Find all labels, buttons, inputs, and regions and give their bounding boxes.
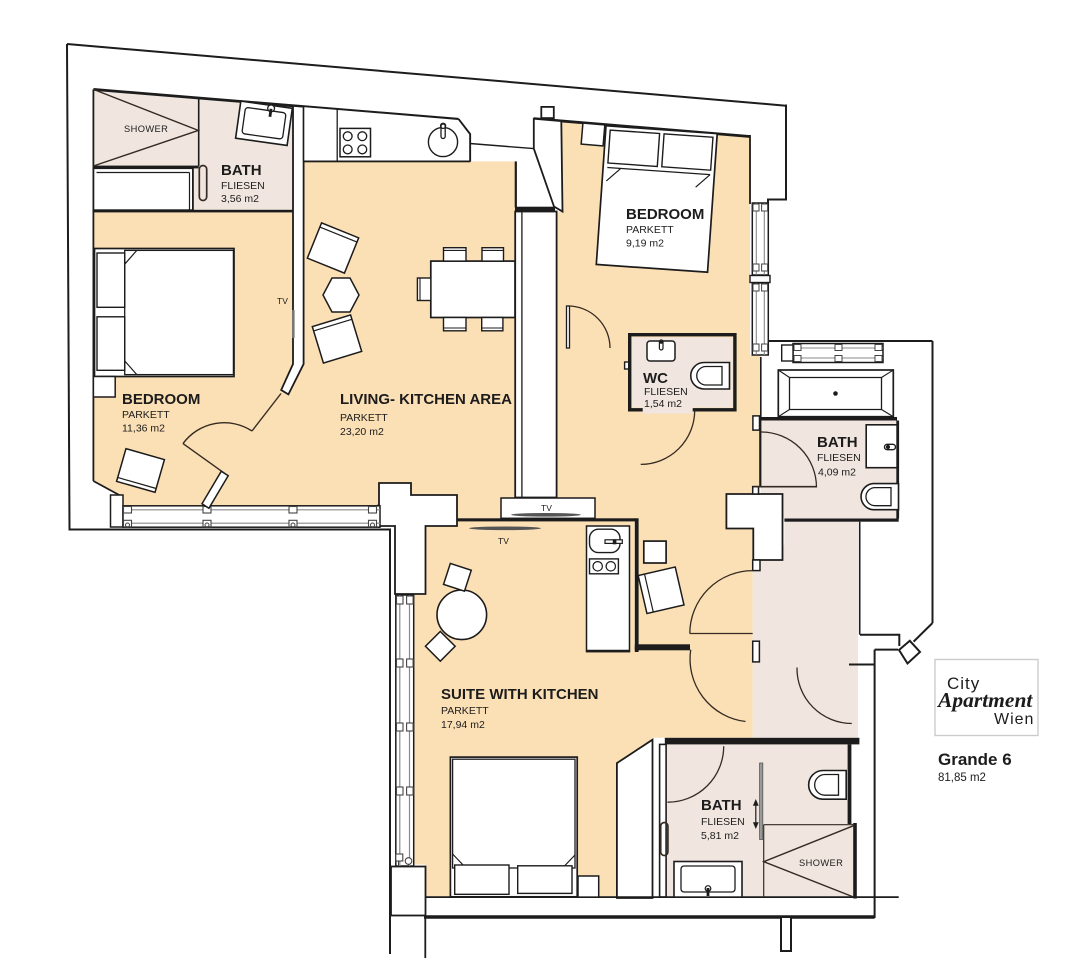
svg-text:PARKETT: PARKETT	[626, 224, 674, 236]
svg-text:17,94 m2: 17,94 m2	[441, 719, 485, 731]
svg-text:FLIESEN: FLIESEN	[644, 386, 688, 398]
svg-text:SHOWER: SHOWER	[799, 858, 843, 868]
svg-text:BATH: BATH	[221, 162, 262, 179]
svg-text:Apartment: Apartment	[936, 688, 1033, 712]
svg-text:TV: TV	[541, 503, 552, 513]
svg-text:PARKETT: PARKETT	[441, 705, 489, 717]
svg-text:LIVING- KITCHEN AREA: LIVING- KITCHEN AREA	[340, 391, 512, 408]
svg-text:FLIESEN: FLIESEN	[817, 452, 861, 464]
svg-text:5,81 m2: 5,81 m2	[701, 830, 739, 842]
svg-text:SUITE WITH KITCHEN: SUITE WITH KITCHEN	[441, 686, 599, 703]
svg-text:23,20 m2: 23,20 m2	[340, 426, 384, 438]
svg-text:TV: TV	[277, 296, 288, 306]
svg-text:4,09 m2: 4,09 m2	[818, 467, 856, 479]
svg-text:BEDROOM: BEDROOM	[122, 391, 200, 408]
svg-text:11,36 m2: 11,36 m2	[122, 423, 165, 435]
svg-text:PARKETT: PARKETT	[340, 412, 388, 424]
svg-text:9,19 m2: 9,19 m2	[626, 238, 664, 250]
svg-text:TV: TV	[498, 536, 509, 546]
svg-text:WC: WC	[643, 370, 668, 387]
svg-text:3,56 m2: 3,56 m2	[221, 193, 259, 205]
svg-text:BEDROOM: BEDROOM	[626, 206, 704, 223]
svg-text:1,54 m2: 1,54 m2	[644, 398, 682, 410]
svg-text:SHOWER: SHOWER	[124, 124, 168, 134]
svg-text:Wien: Wien	[994, 711, 1034, 728]
svg-text:BATH: BATH	[701, 797, 742, 814]
svg-text:Grande 6: Grande 6	[938, 750, 1012, 769]
svg-text:81,85 m2: 81,85 m2	[938, 772, 986, 784]
svg-text:BATH: BATH	[817, 434, 858, 451]
svg-text:FLIESEN: FLIESEN	[221, 180, 265, 192]
svg-text:FLIESEN: FLIESEN	[701, 816, 745, 828]
svg-text:PARKETT: PARKETT	[122, 409, 170, 421]
